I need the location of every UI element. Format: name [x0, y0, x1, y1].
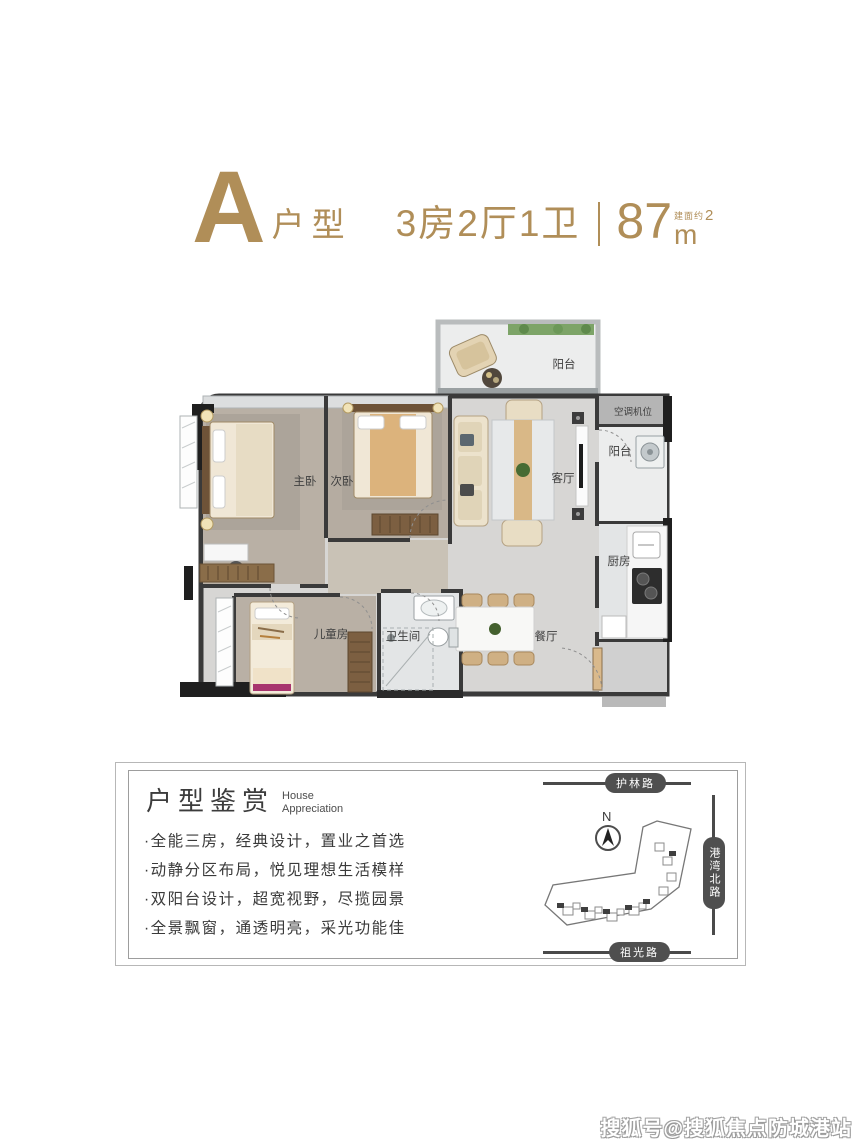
fridge [602, 616, 626, 638]
unit-type-label: 户型 [272, 198, 352, 250]
road-label-top: 护林路 [605, 773, 666, 793]
balcony-top [438, 322, 598, 392]
second-wardrobe [372, 514, 438, 535]
watermark: 搜狐号@搜狐焦点防城港站 [600, 1112, 852, 1141]
area-value: 87 [616, 192, 672, 250]
master-window-bench [200, 564, 274, 582]
panel-subtitle-line2: Appreciation [282, 803, 343, 816]
dining-set [456, 594, 534, 665]
toilet [428, 628, 448, 646]
kids-bed [250, 602, 294, 694]
floor-plan: 阳台 空调机位 阳台 主卧 次卧 客厅 厨房 餐厅 儿童房 卫生间 [172, 316, 688, 714]
site-plan [539, 815, 703, 945]
room-label-kids: 儿童房 [314, 627, 349, 641]
area-unit-wrap: 建面约 m [674, 209, 704, 249]
panel-title: 户型鉴赏 [146, 781, 274, 818]
bullet-3: ·双阳台设计，超宽视野，尽揽园景 [144, 885, 406, 914]
panel-subtitle: House Appreciation [282, 790, 343, 818]
room-label-master: 主卧 [294, 475, 317, 488]
header-divider [598, 202, 600, 246]
area-superscript: 2 [705, 207, 713, 250]
bullet-4: ·全景飘窗，通透明亮，采光功能佳 [144, 914, 406, 943]
room-label-balcony-side: 阳台 [609, 444, 632, 458]
room-label-bath: 卫生间 [386, 629, 421, 643]
living-rug [492, 420, 554, 520]
room-label-ac: 空调机位 [614, 406, 653, 418]
master-bed [201, 410, 300, 530]
room-label-kitchen: 厨房 [608, 555, 631, 568]
room-label-living: 客厅 [552, 471, 575, 485]
appreciation-panel: 户型鉴赏 House Appreciation ·全能三房，经典设计，置业之首选… [115, 762, 746, 966]
road-label-right: 港湾北路 [703, 837, 725, 909]
location-map: 护林路 港湾北路 祖光路 N [533, 771, 729, 957]
sofa [454, 416, 488, 526]
bullet-1: ·全能三房，经典设计，置业之首选 [144, 827, 406, 856]
room-label-second: 次卧 [331, 474, 354, 488]
unit-layout: 3房2厅1卫 [396, 193, 581, 250]
road-label-bottom: 祖光路 [609, 942, 670, 962]
area-unit: m [674, 222, 697, 247]
room-label-balcony-top: 阳台 [553, 357, 576, 371]
washing-machine [636, 436, 664, 468]
entry-step [602, 697, 666, 707]
unit-header: A 户型 3房2厅1卫 87 建面约 m 2 [192, 166, 713, 250]
panel-subtitle-line1: House [282, 790, 343, 803]
floor-plan-drawing: 阳台 空调机位 阳台 主卧 次卧 客厅 厨房 餐厅 儿童房 卫生间 [172, 316, 688, 714]
entry-floor [599, 642, 667, 692]
stove [632, 568, 662, 604]
hallway-floor [328, 540, 448, 594]
side-table [482, 368, 502, 388]
page: { "header": { "unit_letter": "A", "unit_… [0, 0, 860, 1147]
kids-wardrobe [348, 632, 372, 692]
bullet-2: ·动静分区布局，悦见理想生活模样 [144, 856, 406, 885]
feature-bullets: ·全能三房，经典设计，置业之首选 ·动静分区布局，悦见理想生活模样 ·双阳台设计… [144, 827, 406, 943]
panel-title-row: 户型鉴赏 House Appreciation [146, 781, 343, 818]
coffee-table-plant [516, 463, 530, 477]
room-label-dining: 餐厅 [535, 629, 558, 643]
unit-letter: A [192, 166, 266, 250]
second-bed [342, 403, 443, 510]
tv [579, 444, 583, 488]
